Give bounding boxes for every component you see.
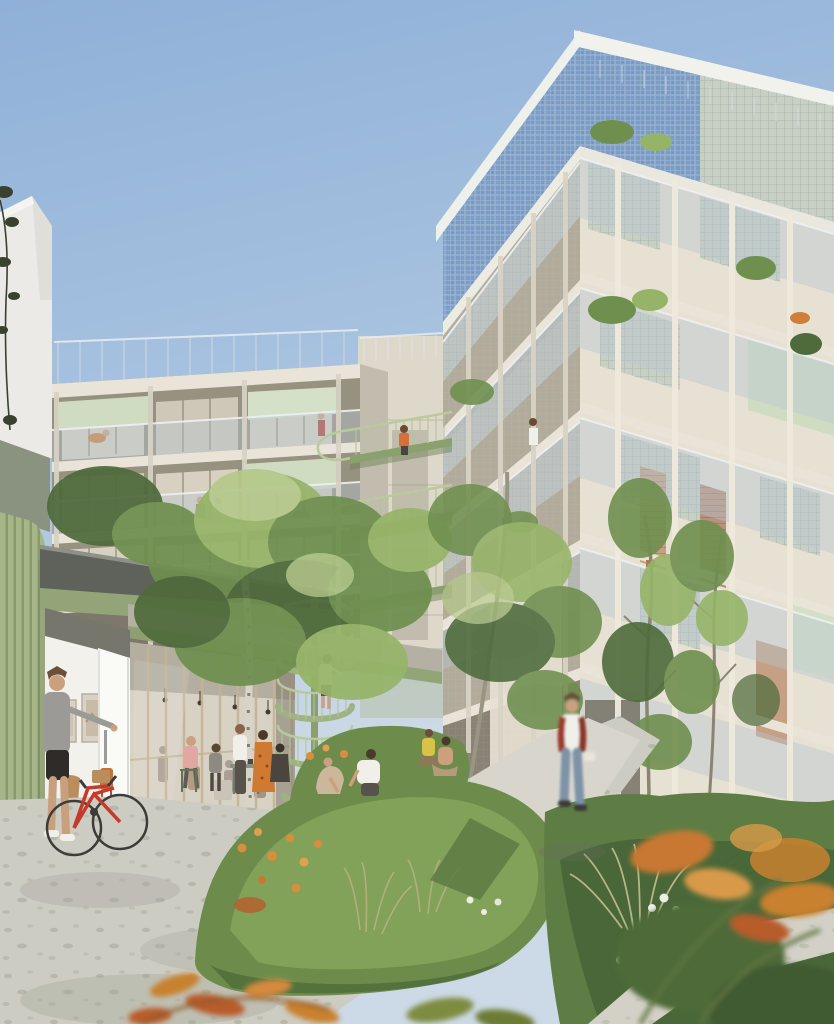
white-neighbour-building (0, 186, 52, 458)
architectural-rendering-courtyard (0, 0, 834, 1024)
door-handle (104, 730, 107, 764)
render-canvas (0, 0, 834, 1024)
balcony-person-railing (529, 418, 538, 445)
